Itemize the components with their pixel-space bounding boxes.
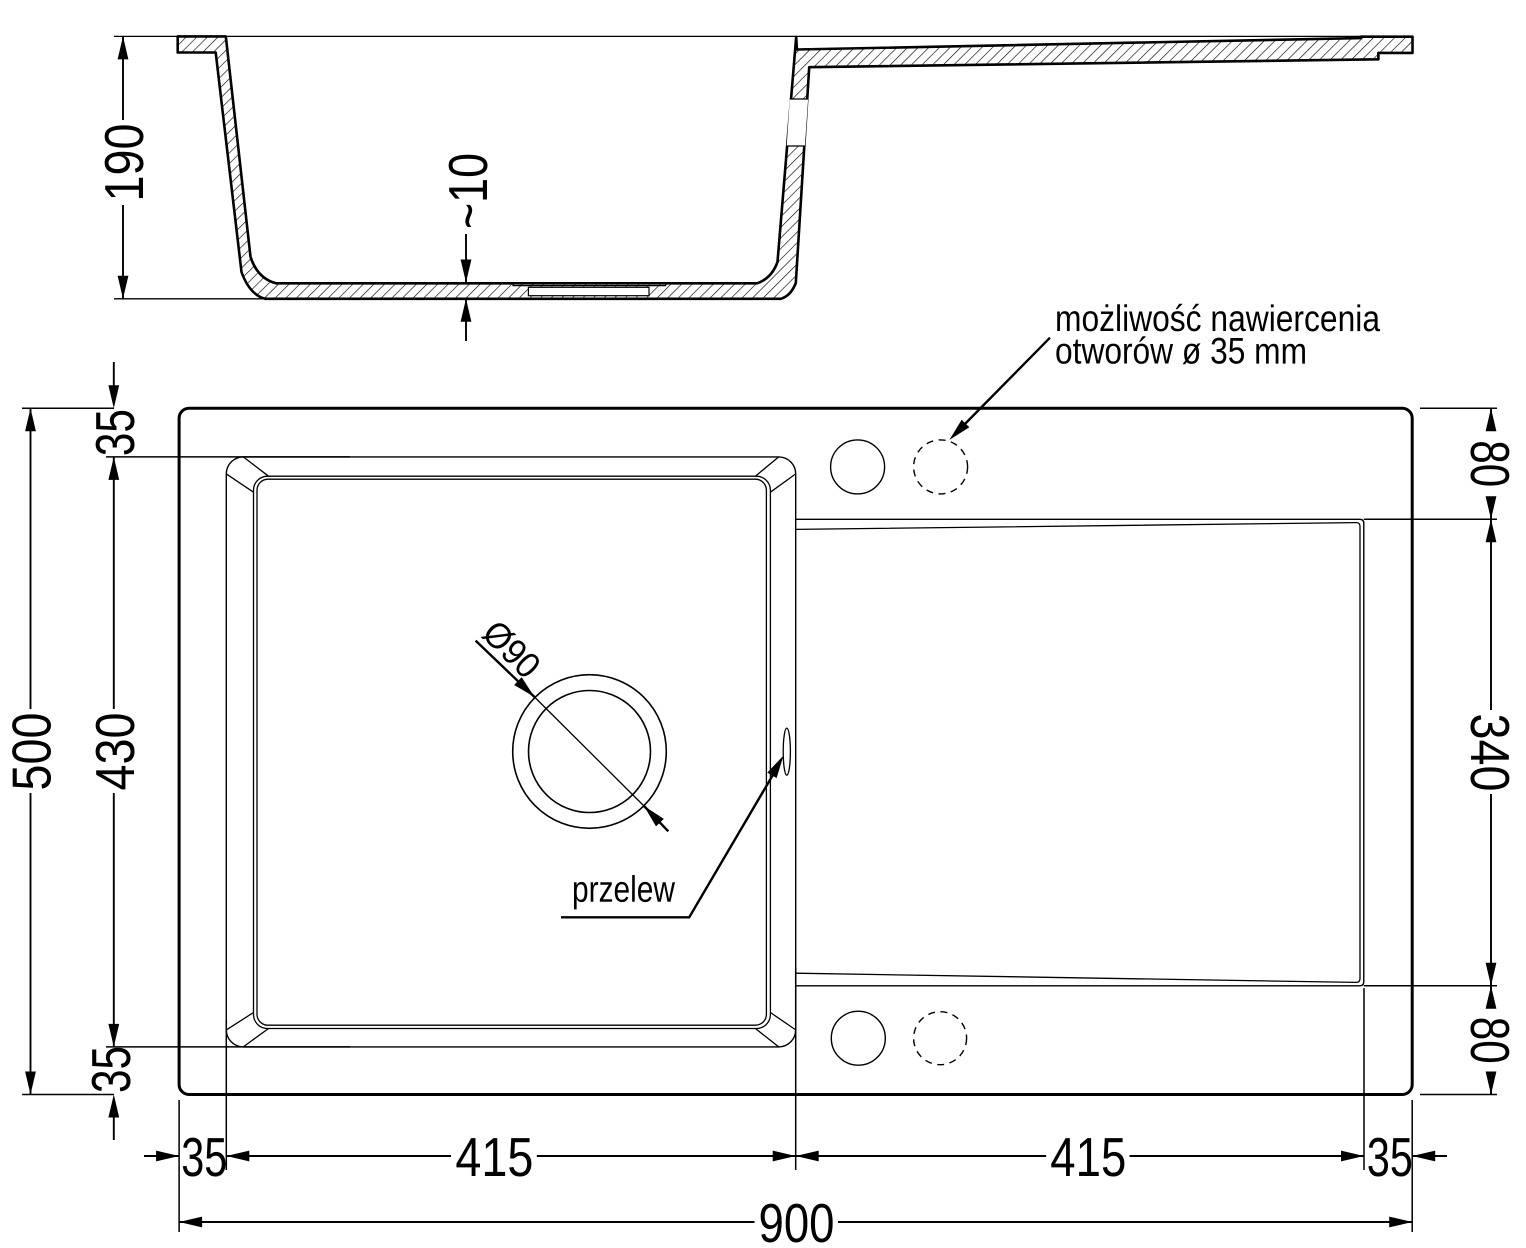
svg-text:80: 80 xyxy=(1459,1017,1521,1064)
svg-text:~10: ~10 xyxy=(437,153,499,229)
svg-text:900: 900 xyxy=(759,1192,835,1248)
svg-text:80: 80 xyxy=(1459,440,1521,487)
svg-text:35: 35 xyxy=(181,1126,227,1188)
svg-text:415: 415 xyxy=(1050,1126,1126,1188)
svg-text:35: 35 xyxy=(1367,1126,1413,1188)
svg-text:415: 415 xyxy=(455,1126,533,1188)
svg-text:500: 500 xyxy=(1,713,63,791)
svg-text:35: 35 xyxy=(80,1046,142,1093)
svg-text:35: 35 xyxy=(84,409,146,456)
svg-text:430: 430 xyxy=(84,713,146,791)
svg-text:190: 190 xyxy=(93,124,155,202)
svg-text:340: 340 xyxy=(1459,714,1521,792)
svg-text:otworów ø 35 mm: otworów ø 35 mm xyxy=(1055,331,1307,372)
svg-text:przelew: przelew xyxy=(572,869,675,910)
